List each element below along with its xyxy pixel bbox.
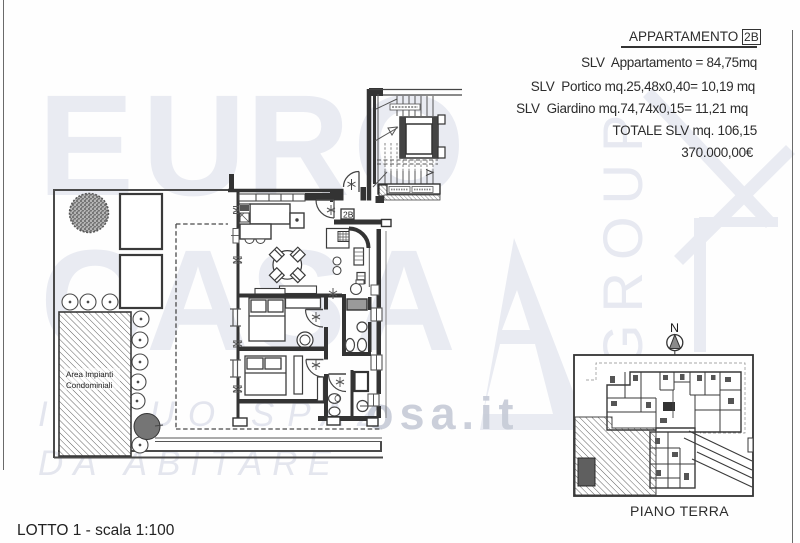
svg-text:Area Impianti: Area Impianti	[66, 370, 113, 379]
svg-text:Condominiali: Condominiali	[66, 381, 112, 390]
svg-text:N: N	[670, 321, 679, 335]
svg-text:2B: 2B	[343, 210, 354, 220]
